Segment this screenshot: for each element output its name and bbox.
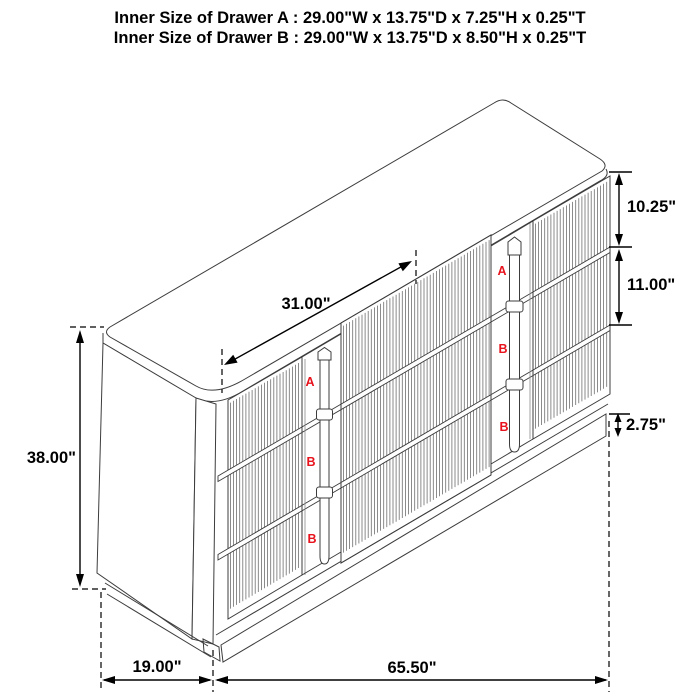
handle-right-joint-2 [506,379,523,390]
drawer-label-left-a: A [305,375,314,389]
left-side-panel [97,343,196,639]
drawer-handle-left [317,348,333,565]
dimension-drawer-b-front: 11.00" [609,249,675,325]
dresser-line-drawing: A B B A B B 31.00" 38.00" [0,0,700,700]
drawer-label-right-a: A [497,264,506,278]
handle-right-bar [510,255,520,452]
dim-drawer-b-label: 11.00" [627,276,675,294]
dim-base-height-label: 2.75" [626,416,666,434]
handle-right-cap [508,237,521,255]
dim-width-label: 65.50" [387,659,436,677]
dim-depth-label: 19.00" [132,658,181,676]
drawer-label-right-b1: B [498,342,507,356]
handle-strip-right [491,221,533,464]
handle-left-joint-1 [317,409,333,420]
drawer-label-right-b2: B [499,420,508,434]
drawer-label-left-b2: B [307,532,316,546]
front-left-corner-strip [192,398,216,644]
fluted-panel-left [228,357,302,619]
cabinet: A B B A B B [97,100,610,662]
drawer-label-left-b1: B [306,455,315,469]
furniture-dimension-diagram: Inner Size of Drawer A : 29.00"W x 13.75… [0,0,700,700]
dimension-drawer-a-front: 10.25" [609,172,676,247]
dim-top-width-label: 31.00" [281,295,330,313]
cabinet-left-side [97,343,216,657]
handle-left-bar [320,360,329,564]
handle-right-joint-1 [506,301,523,312]
dim-drawer-a-label: 10.25" [627,198,676,216]
handle-left-cap [318,348,331,361]
dimension-base-height: 2.75" [609,413,666,437]
drawer-handle-right [506,237,523,452]
handle-left-joint-2 [317,487,333,498]
dimension-overall-height: 38.00" [27,327,106,589]
dim-height-label: 38.00" [27,449,76,467]
